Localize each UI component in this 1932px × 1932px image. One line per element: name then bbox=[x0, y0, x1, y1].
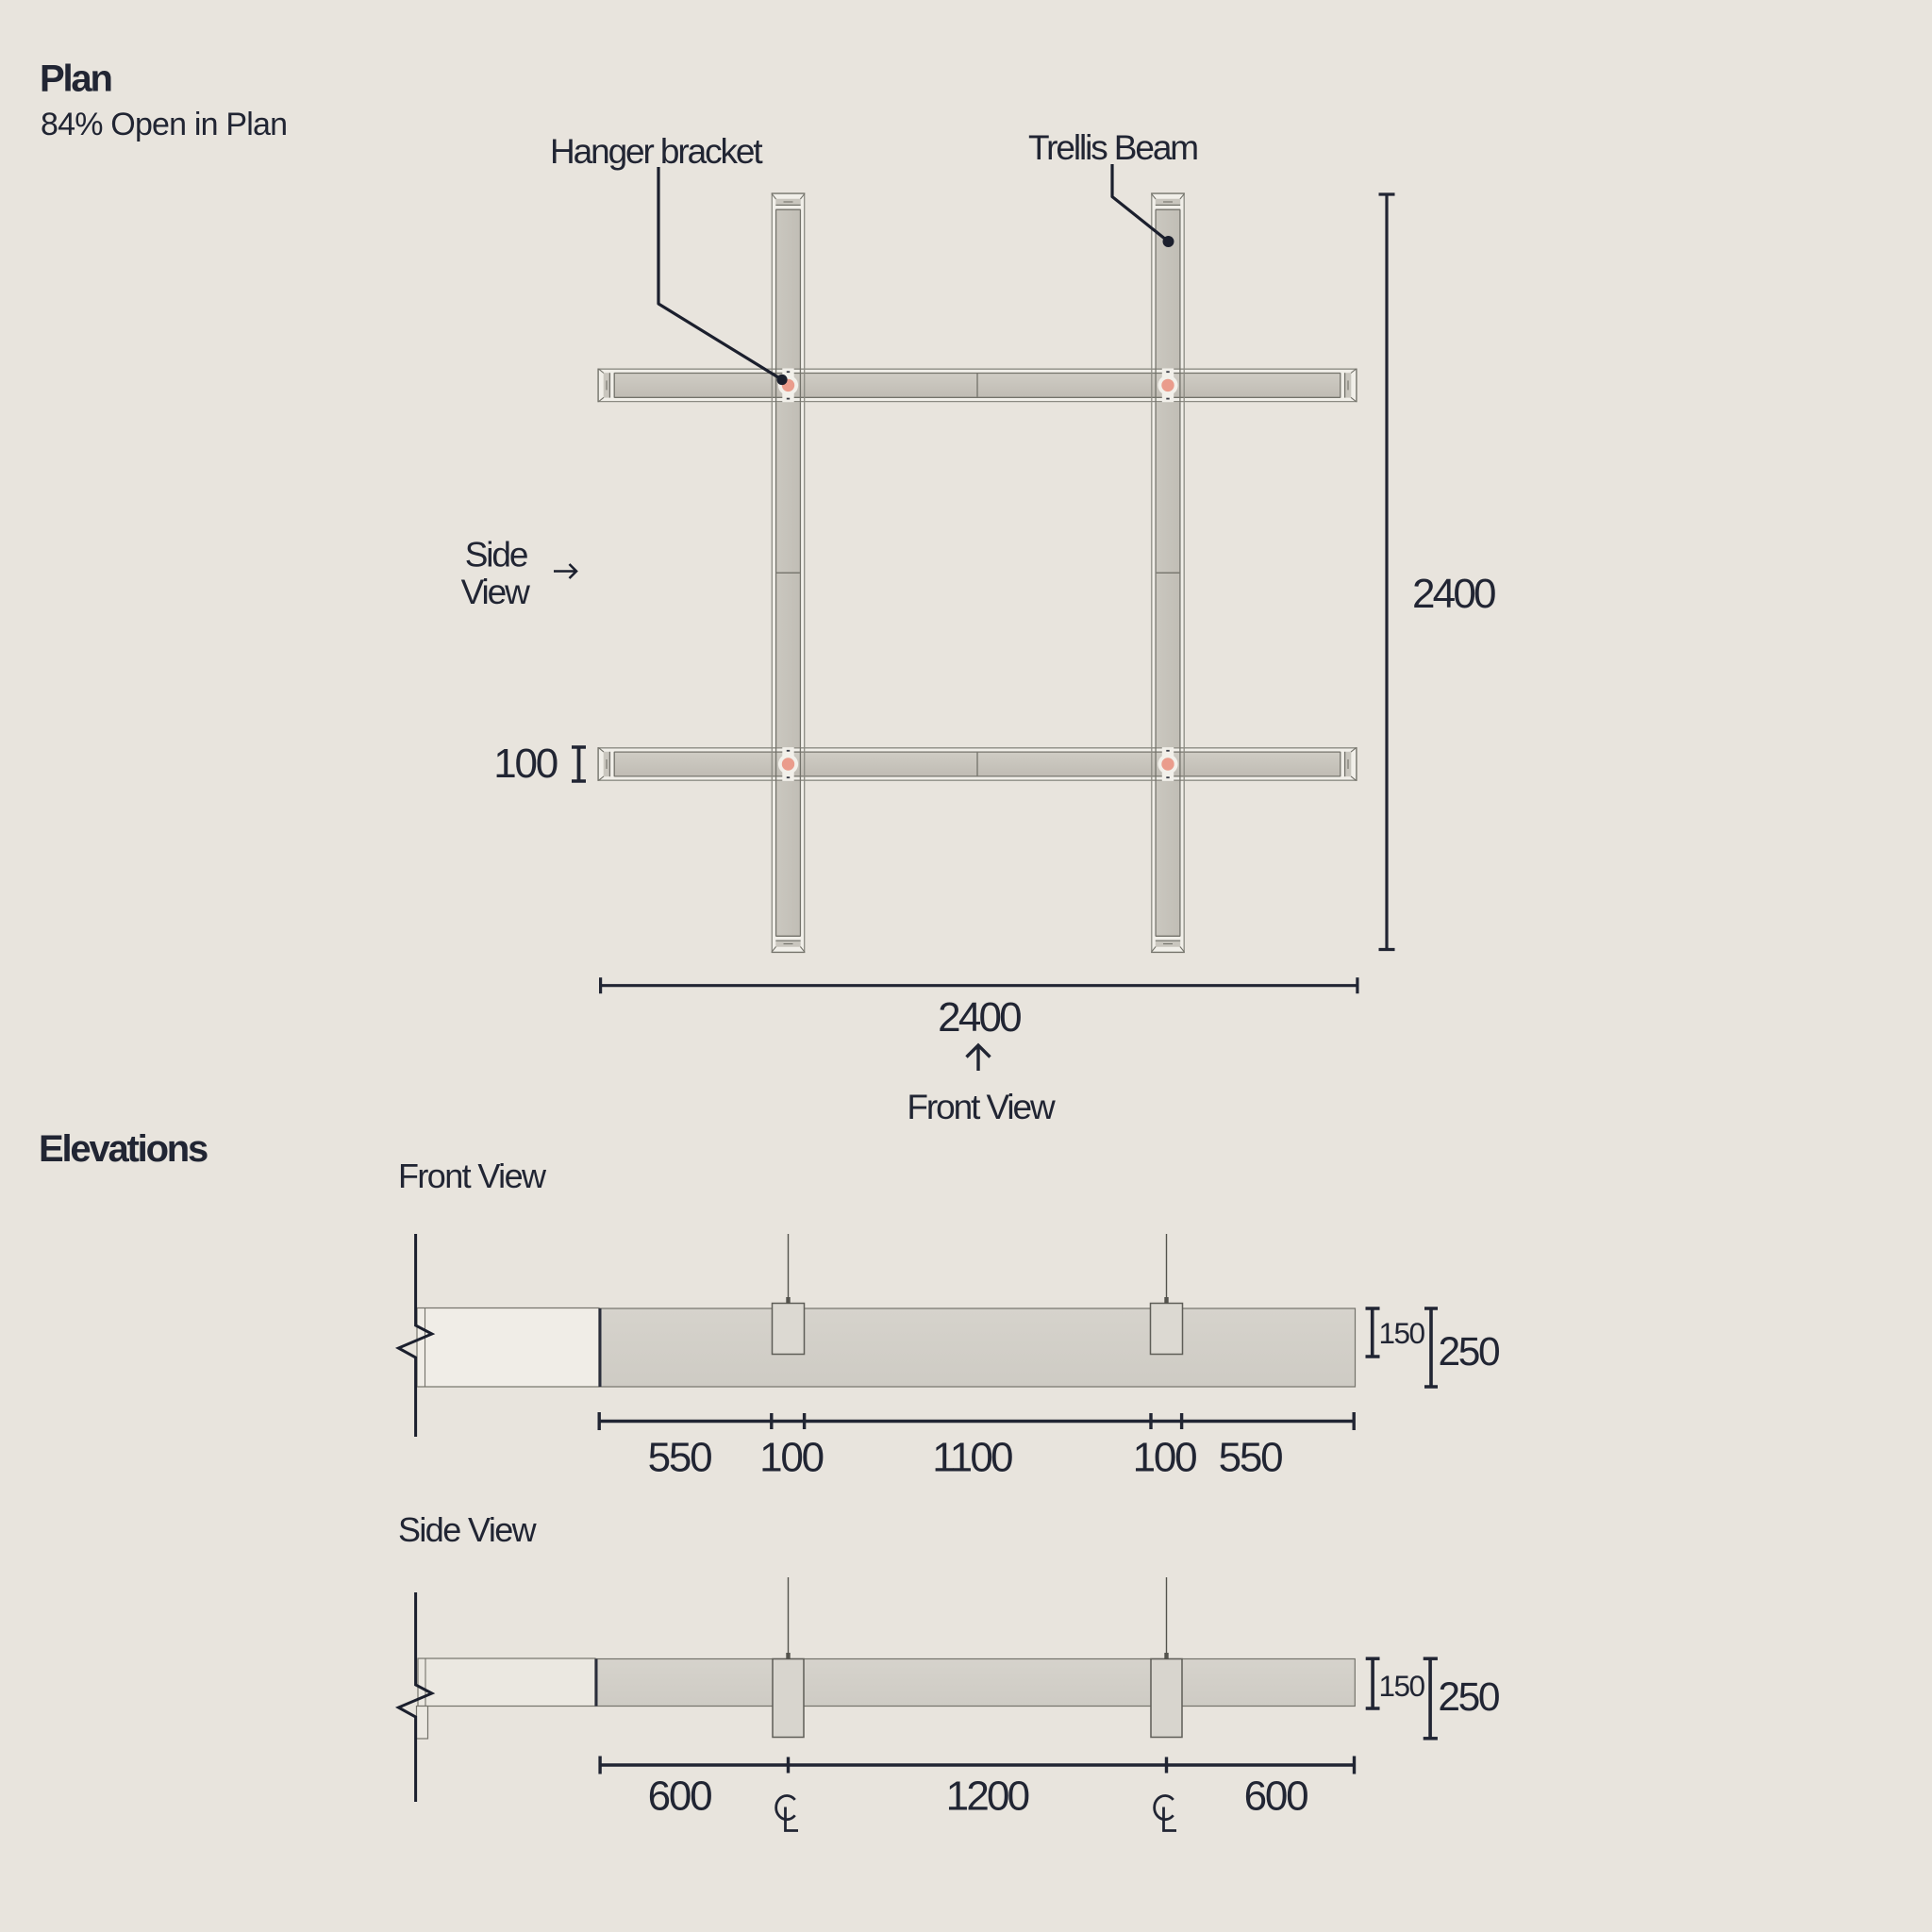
svg-text:Hanger bracket: Hanger bracket bbox=[550, 132, 763, 171]
svg-text:150: 150 bbox=[1379, 1316, 1425, 1350]
svg-text:Side: Side bbox=[465, 536, 527, 575]
svg-text:Front View: Front View bbox=[907, 1088, 1056, 1126]
svg-text:Trellis Beam: Trellis Beam bbox=[1028, 128, 1197, 167]
svg-text:1100: 1100 bbox=[932, 1435, 1012, 1481]
svg-text:600: 600 bbox=[648, 1774, 712, 1820]
svg-text:150: 150 bbox=[1379, 1669, 1425, 1703]
svg-text:550: 550 bbox=[1219, 1435, 1283, 1481]
svg-text:View: View bbox=[461, 573, 531, 611]
svg-text:2400: 2400 bbox=[1412, 571, 1495, 617]
svg-text:Side View: Side View bbox=[398, 1510, 538, 1549]
svg-text:100: 100 bbox=[493, 741, 558, 787]
svg-text:Plan: Plan bbox=[40, 58, 111, 100]
svg-text:1200: 1200 bbox=[946, 1774, 1029, 1820]
svg-text:100: 100 bbox=[1133, 1435, 1197, 1481]
svg-text:2400: 2400 bbox=[938, 994, 1021, 1041]
svg-text:250: 250 bbox=[1439, 1330, 1499, 1374]
svg-text:550: 550 bbox=[648, 1435, 712, 1481]
svg-text:250: 250 bbox=[1438, 1675, 1498, 1720]
svg-text:Front View: Front View bbox=[398, 1157, 547, 1195]
svg-text:100: 100 bbox=[759, 1435, 824, 1481]
svg-text:84% Open in Plan: 84% Open in Plan bbox=[41, 107, 287, 142]
svg-text:600: 600 bbox=[1244, 1774, 1308, 1820]
svg-text:Elevations: Elevations bbox=[39, 1128, 208, 1170]
